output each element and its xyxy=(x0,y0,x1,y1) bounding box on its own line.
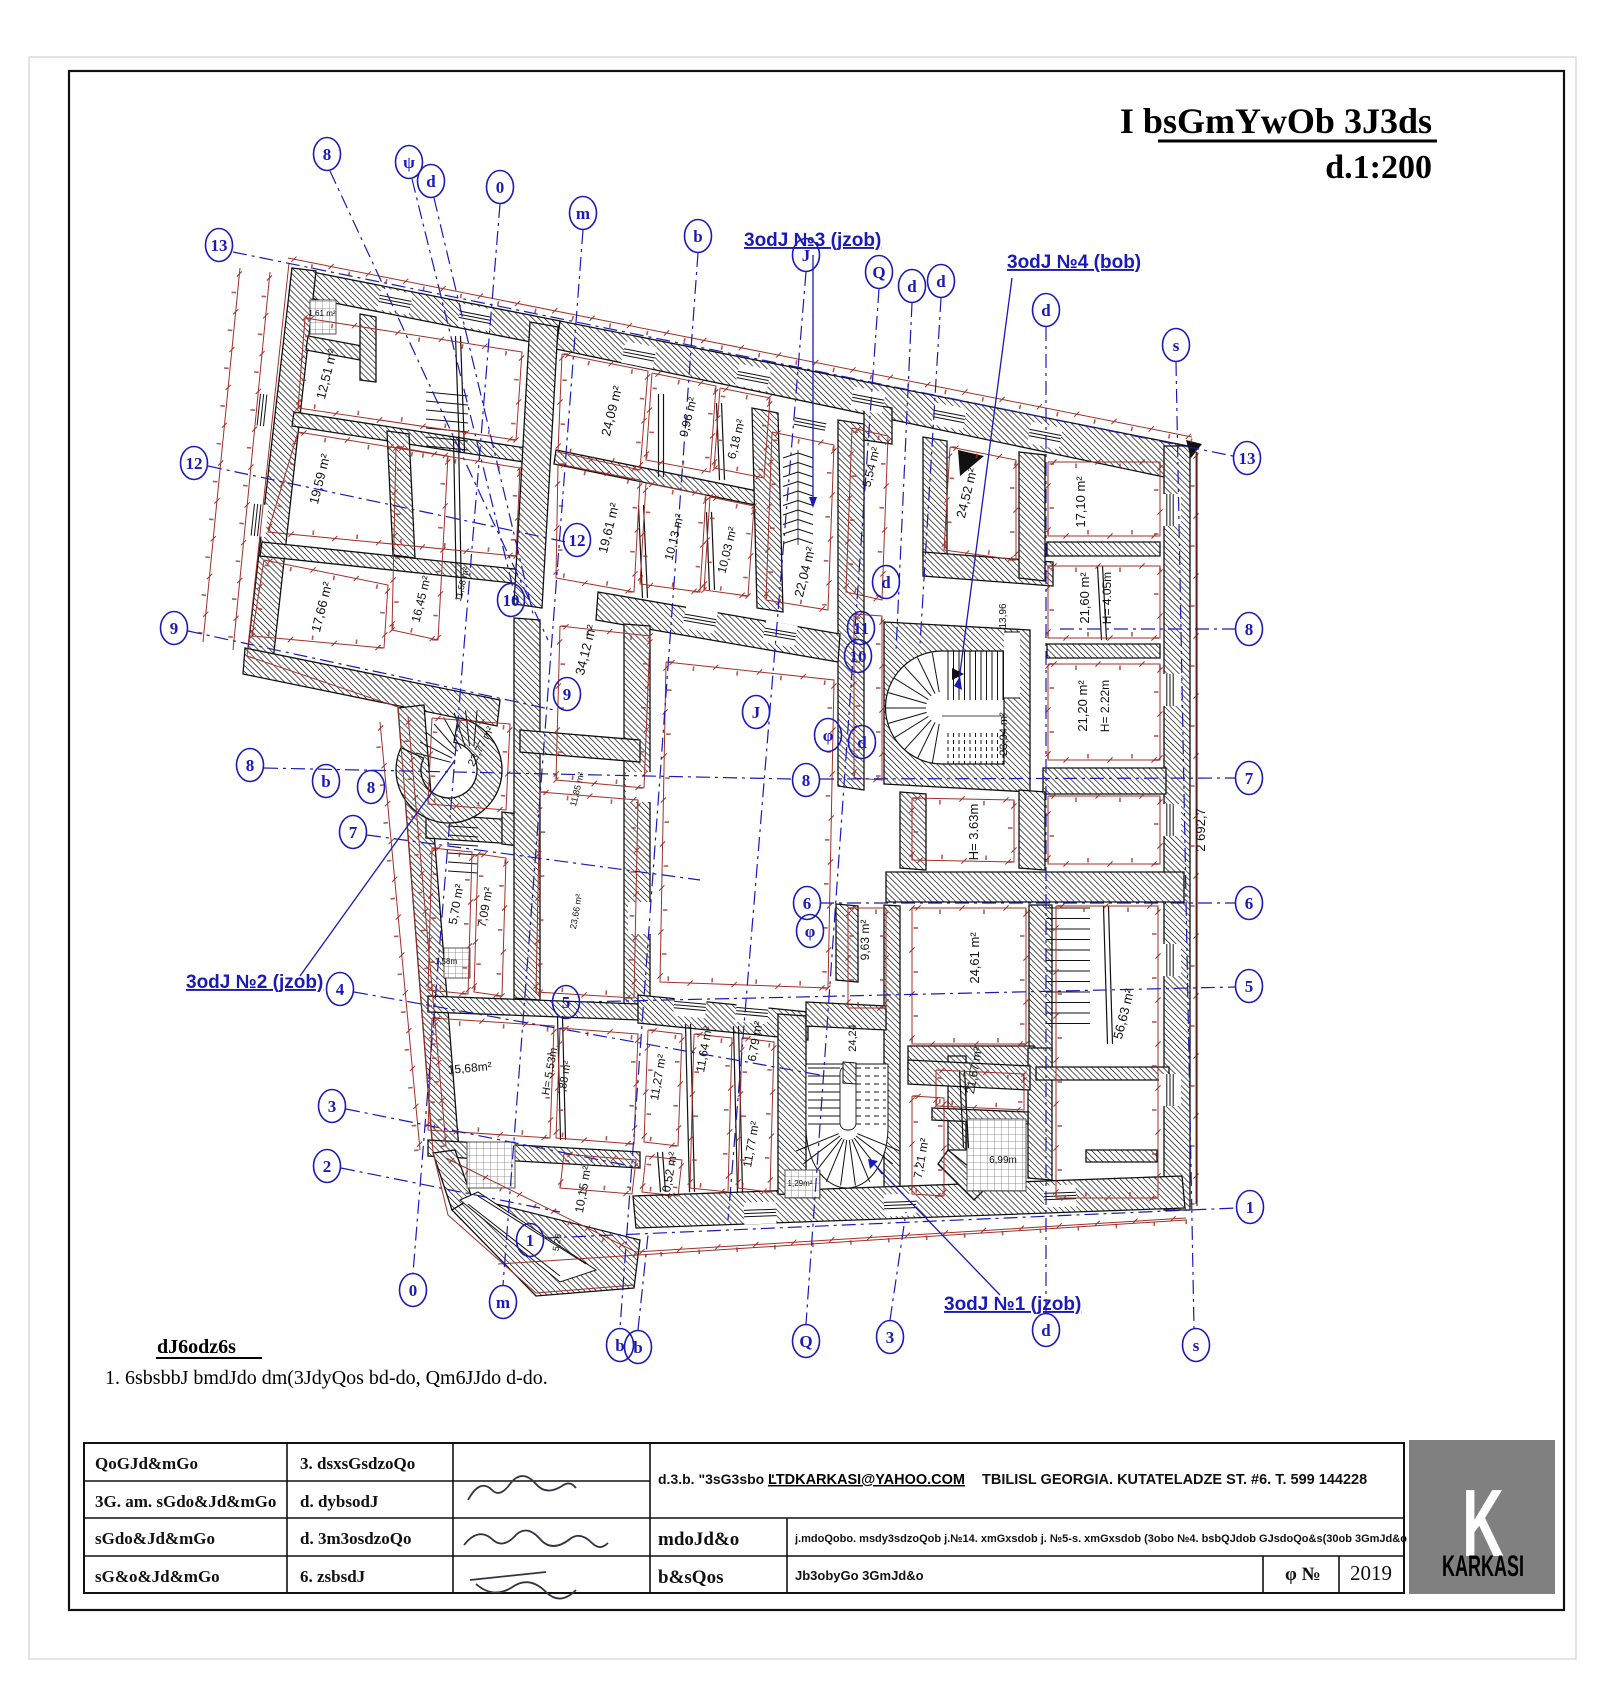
svg-text:d. dybsodJ: d. dybsodJ xyxy=(300,1492,379,1511)
svg-text:d: d xyxy=(426,172,436,191)
svg-text:H= 3.63m: H= 3.63m xyxy=(966,804,981,861)
svg-text:5: 5 xyxy=(562,993,571,1012)
svg-text:24,61 m²: 24,61 m² xyxy=(967,932,982,984)
svg-text:1: 1 xyxy=(526,1231,535,1250)
svg-text:10: 10 xyxy=(503,591,520,610)
svg-text:13: 13 xyxy=(1239,449,1256,468)
svg-text:8: 8 xyxy=(246,756,255,775)
svg-text:3: 3 xyxy=(328,1097,337,1116)
svg-text:b: b xyxy=(615,1336,624,1355)
svg-text:j.mdoQobo. msdy3sdzoQob j.№14.: j.mdoQobo. msdy3sdzoQob j.№14. xmGxsdob … xyxy=(794,1533,1407,1545)
svg-text:b: b xyxy=(633,1338,642,1357)
svg-text:TBILISL GEORGIA. KUTATELADZE S: TBILISL GEORGIA. KUTATELADZE ST. #6. T. … xyxy=(982,1472,1367,1488)
svg-text:d. 3m3osdzoQo: d. 3m3osdzoQo xyxy=(300,1529,411,1548)
svg-text:9,63 m²: 9,63 m² xyxy=(858,920,872,961)
svg-text:s: s xyxy=(1193,1336,1200,1355)
svg-text:d.3.b. "3sG3sbo ": d.3.b. "3sG3sbo " xyxy=(658,1471,775,1487)
svg-text:13,96: 13,96 xyxy=(998,603,1009,628)
svg-text:9: 9 xyxy=(563,685,572,704)
svg-text:23,94 m²: 23,94 m² xyxy=(998,712,1010,756)
svg-text:0: 0 xyxy=(496,178,505,197)
svg-text:J: J xyxy=(752,703,761,722)
svg-text:m: m xyxy=(576,204,590,223)
svg-text:H= 4.05m: H= 4.05m xyxy=(1100,572,1114,624)
svg-text:24,24: 24,24 xyxy=(847,1024,859,1052)
svg-text:3odJ №1 (jzob): 3odJ №1 (jzob) xyxy=(944,1294,1081,1315)
svg-text:7: 7 xyxy=(349,823,358,842)
svg-text:6: 6 xyxy=(803,894,812,913)
svg-text:1. 6sbsbbJ bmdJdo dm(3JdyQos b: 1. 6sbsbbJ bmdJdo dm(3JdyQos bd-do, Qm6J… xyxy=(105,1367,548,1389)
svg-text:Jb3obyGo 3GmJd&o: Jb3obyGo 3GmJd&o xyxy=(795,1568,924,1583)
svg-text:H= 2.22m: H= 2.22m xyxy=(1098,680,1112,732)
svg-text:1,61 m²: 1,61 m² xyxy=(308,309,335,318)
svg-text:d: d xyxy=(881,573,891,592)
svg-text:sG&o&Jd&mGo: sG&o&Jd&mGo xyxy=(95,1567,220,1586)
svg-text:8: 8 xyxy=(323,145,332,164)
svg-text:d.1:200: d.1:200 xyxy=(1325,149,1432,186)
svg-text:0: 0 xyxy=(409,1281,418,1300)
svg-text:11: 11 xyxy=(853,619,869,638)
svg-text:d: d xyxy=(936,272,946,291)
svg-text:10: 10 xyxy=(850,647,867,666)
svg-text:8: 8 xyxy=(802,771,811,790)
svg-text:m: m xyxy=(496,1293,510,1312)
svg-text:3. dsxsGsdzoQo: 3. dsxsGsdzoQo xyxy=(300,1454,415,1473)
svg-text:4: 4 xyxy=(336,980,345,999)
svg-text:LTDKARKASI@YAHOO.COM: LTDKARKASI@YAHOO.COM xyxy=(768,1472,965,1488)
svg-text:d: d xyxy=(1041,1321,1051,1340)
svg-text:d: d xyxy=(857,733,867,752)
svg-text:12: 12 xyxy=(186,454,203,473)
svg-text:s: s xyxy=(1173,336,1180,355)
svg-text:ψ: ψ xyxy=(403,153,415,172)
svg-text:b: b xyxy=(693,227,702,246)
svg-text:φ: φ xyxy=(823,726,834,745)
svg-text:3odJ №4 (bob): 3odJ №4 (bob) xyxy=(1007,252,1141,273)
svg-text:3: 3 xyxy=(886,1328,895,1347)
svg-text:2: 2 xyxy=(323,1157,332,1176)
svg-text:5: 5 xyxy=(1245,977,1254,996)
svg-text:2019: 2019 xyxy=(1350,1561,1392,1585)
svg-text:6: 6 xyxy=(1245,894,1254,913)
svg-text:3G. am. sGdo&Jd&mGo: 3G. am. sGdo&Jd&mGo xyxy=(95,1492,276,1511)
svg-text:φ №: φ № xyxy=(1285,1564,1321,1585)
svg-text:12: 12 xyxy=(569,531,586,550)
svg-text:7: 7 xyxy=(1245,769,1254,788)
svg-text:dJ6odz6s: dJ6odz6s xyxy=(157,1336,236,1358)
svg-text:21,60 m²: 21,60 m² xyxy=(1077,572,1092,624)
svg-text:3odJ №3 (jzob): 3odJ №3 (jzob) xyxy=(744,230,881,251)
svg-text:21,20 m²: 21,20 m² xyxy=(1075,680,1090,732)
svg-text:sGdo&Jd&mGo: sGdo&Jd&mGo xyxy=(95,1529,215,1548)
svg-text:3odJ №2 (jzob): 3odJ №2 (jzob) xyxy=(186,972,323,993)
svg-text:17,10 m²: 17,10 m² xyxy=(1073,476,1088,528)
svg-text:6,99m: 6,99m xyxy=(989,1155,1017,1166)
svg-text:1: 1 xyxy=(1246,1198,1255,1217)
svg-text:QoGJd&mGo: QoGJd&mGo xyxy=(95,1454,198,1473)
svg-text:KARKASI: KARKASI xyxy=(1442,1551,1524,1584)
svg-text:8: 8 xyxy=(367,778,376,797)
svg-text:mdoJd&o: mdoJd&o xyxy=(658,1529,739,1550)
svg-text:d: d xyxy=(1041,301,1051,320)
svg-text:13: 13 xyxy=(211,236,228,255)
svg-text:1,58m: 1,58m xyxy=(435,957,458,966)
svg-text:φ: φ xyxy=(805,922,816,941)
svg-text:d: d xyxy=(907,277,917,296)
svg-text:I bsGmYwOb 3J3ds: I bsGmYwOb 3J3ds xyxy=(1120,101,1432,141)
svg-text:8: 8 xyxy=(1245,620,1254,639)
svg-text:2 692,7: 2 692,7 xyxy=(1193,808,1208,851)
svg-text:b&sQos: b&sQos xyxy=(658,1567,723,1588)
svg-text:Q: Q xyxy=(872,263,885,282)
svg-text:1,29m²: 1,29m² xyxy=(788,1179,813,1188)
svg-text:6. zsbsdJ: 6. zsbsdJ xyxy=(300,1567,366,1586)
svg-text:Q: Q xyxy=(799,1332,812,1351)
svg-text:b: b xyxy=(321,772,330,791)
svg-text:9: 9 xyxy=(170,619,179,638)
